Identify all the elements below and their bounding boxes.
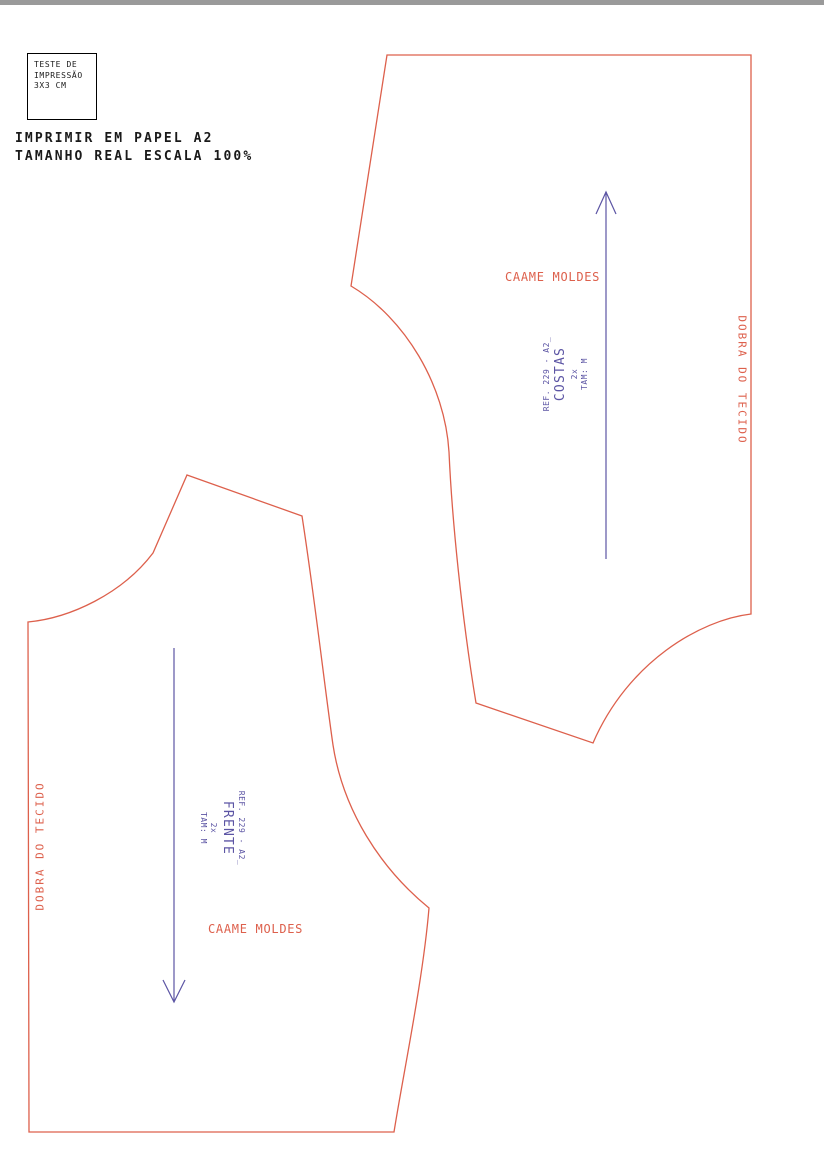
grain-arrow-up xyxy=(596,192,616,559)
grain-arrow-down xyxy=(163,648,185,1002)
back-size: TAM: M xyxy=(580,337,590,411)
back-name: COSTAS xyxy=(553,337,569,411)
front-ref: REF. 229 - A2_ xyxy=(236,791,246,865)
fold-label-back: DOBRA DO TECIDO xyxy=(736,315,749,444)
back-quantity: 2x xyxy=(570,337,580,411)
pattern-drawing xyxy=(0,0,824,1176)
front-name: FRENTE xyxy=(219,791,235,865)
back-ref: REF. 229 - A2_ xyxy=(542,337,552,411)
front-size: TAM: M xyxy=(198,791,208,865)
back-piece-label: REF. 229 - A2_ COSTAS 2x TAM: M xyxy=(542,337,590,411)
brand-label-front: CAAME MOLDES xyxy=(208,922,303,936)
brand-label-back: CAAME MOLDES xyxy=(505,270,600,284)
fold-label-front: DOBRA DO TECIDO xyxy=(34,781,47,910)
front-piece-label: REF. 229 - A2_ FRENTE 2x TAM: M xyxy=(198,791,246,865)
front-quantity: 2x xyxy=(208,791,218,865)
